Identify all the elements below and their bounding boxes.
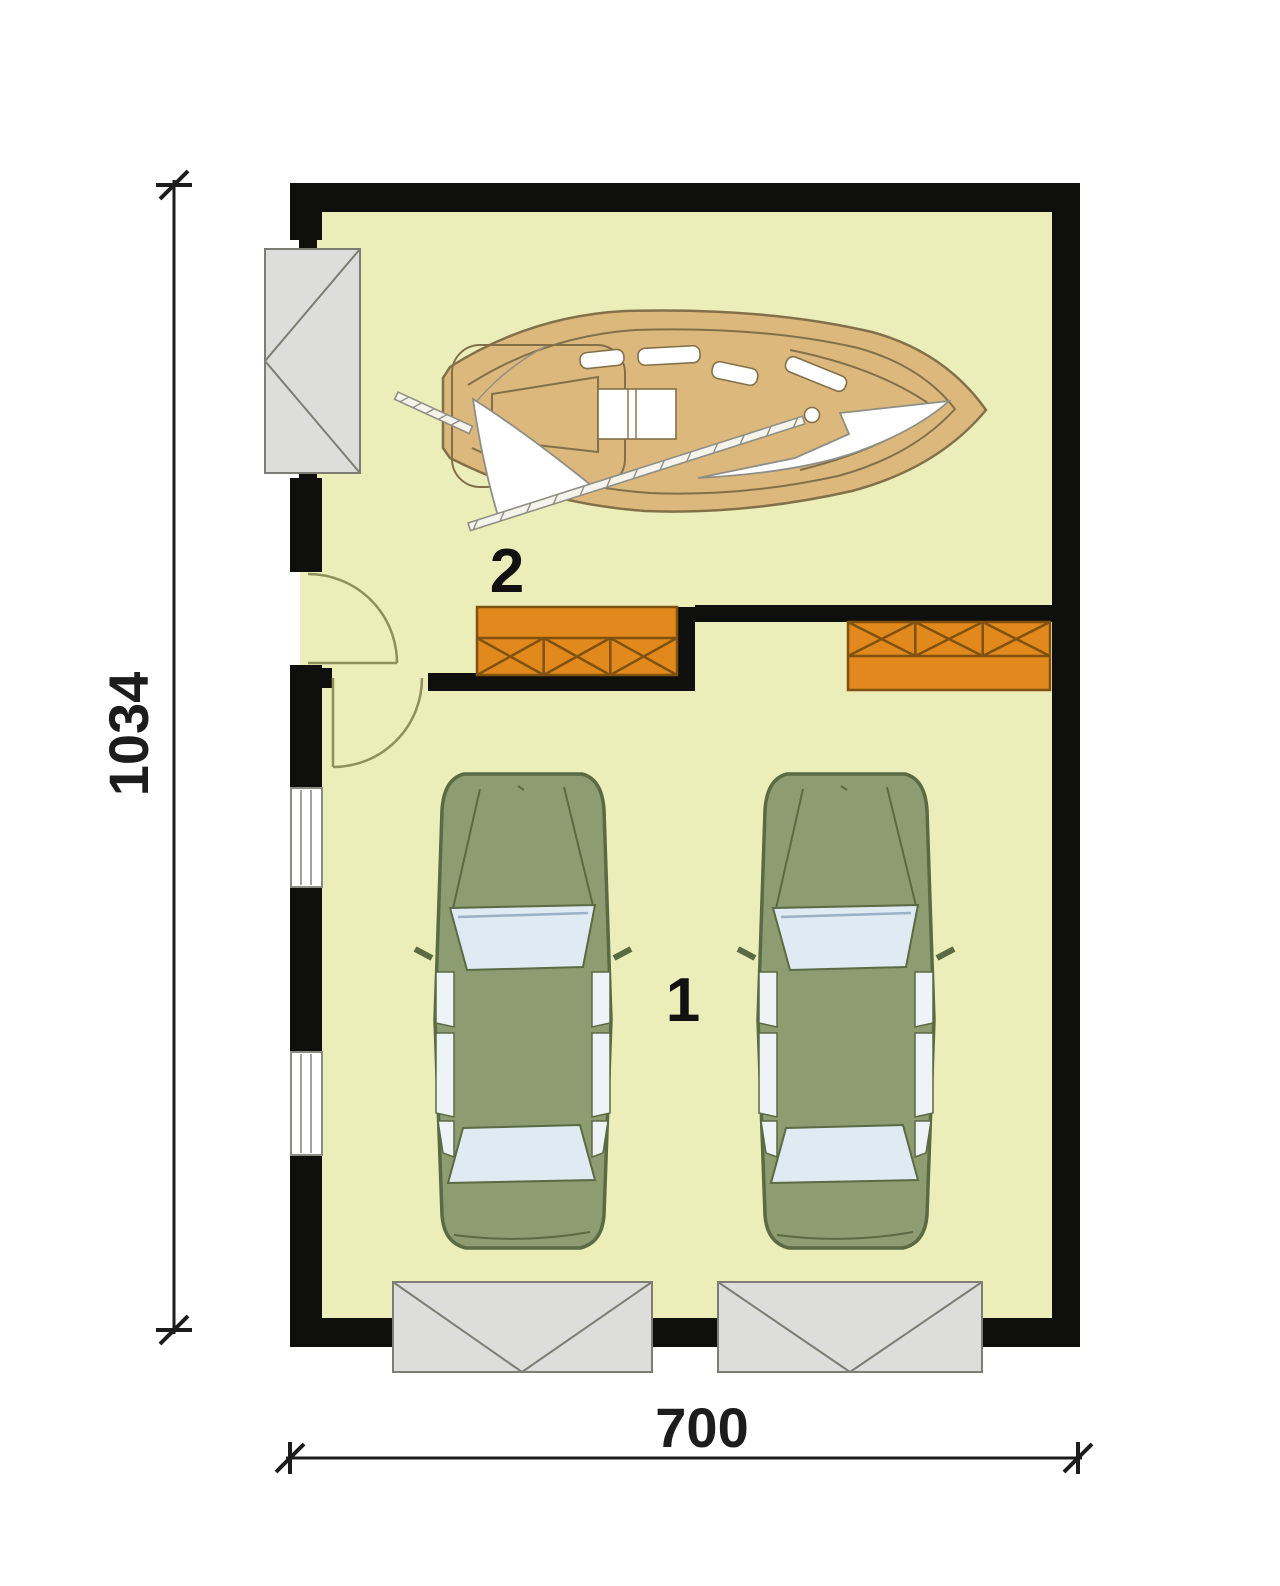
dimension-line-vertical: 1034 <box>97 171 192 1344</box>
height-dimension-label: 1034 <box>97 672 160 797</box>
window-upper <box>291 788 322 887</box>
room-label-2: 2 <box>490 537 524 606</box>
garage-door-right <box>718 1282 982 1372</box>
dimension-line-horizontal: 700 <box>276 1396 1092 1474</box>
mast-ring <box>805 408 820 423</box>
garage-door-side <box>265 249 360 473</box>
room-label-1: 1 <box>666 966 700 1035</box>
car-icon-right <box>738 774 954 1248</box>
car-icon-left <box>415 774 631 1248</box>
floor-plan-drawing: 1034 700 2 1 <box>0 0 1280 1586</box>
width-dimension-label: 700 <box>655 1396 748 1459</box>
floor-plan-page: 1034 700 2 1 <box>0 0 1280 1586</box>
window-lower <box>291 1052 322 1155</box>
beam-left <box>477 607 677 675</box>
beam-right <box>848 622 1050 690</box>
garage-door-left <box>393 1282 652 1372</box>
